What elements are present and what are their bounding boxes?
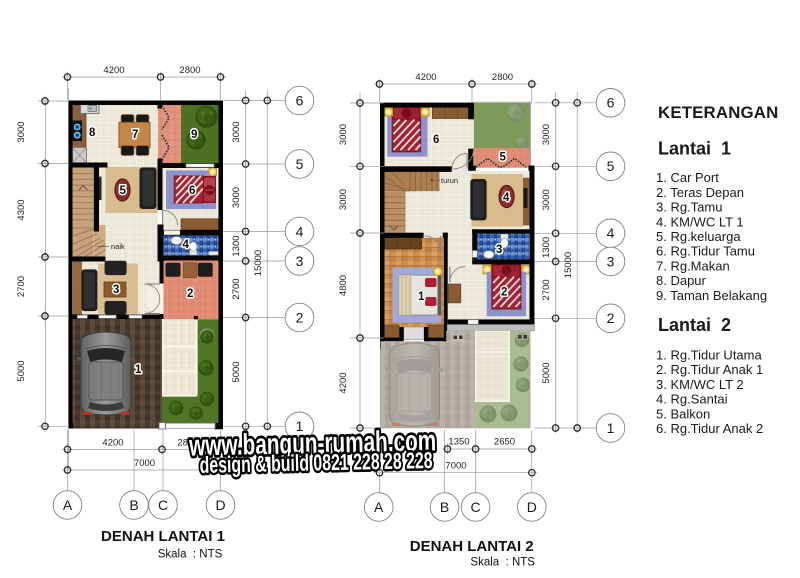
svg-text:A: A	[374, 499, 384, 515]
svg-text:2. Teras Depan: 2. Teras Depan	[656, 185, 744, 200]
svg-text:1: 1	[135, 364, 142, 376]
svg-text:3000: 3000	[541, 189, 552, 210]
svg-text:7. Rg.Makan: 7. Rg.Makan	[656, 258, 730, 273]
svg-text:Lantai 2: Lantai 2	[658, 315, 731, 335]
svg-text:4200: 4200	[415, 72, 436, 83]
svg-text:1. Car Port: 1. Car Port	[656, 170, 719, 185]
svg-text:15000: 15000	[253, 250, 264, 276]
svg-text:7: 7	[132, 129, 138, 141]
svg-text:3000: 3000	[338, 124, 349, 145]
svg-text:3000: 3000	[231, 187, 242, 208]
svg-text:3: 3	[607, 253, 615, 269]
svg-text:C: C	[471, 499, 481, 515]
svg-text:5: 5	[500, 152, 507, 164]
svg-text:4: 4	[296, 223, 304, 239]
svg-text:5: 5	[120, 185, 127, 197]
svg-text:9: 9	[191, 129, 197, 141]
svg-text:6: 6	[607, 95, 615, 111]
svg-text:Skala : NTS: Skala : NTS	[158, 549, 223, 561]
svg-text:15000: 15000	[563, 252, 574, 278]
svg-text:5. Rg.keluarga: 5. Rg.keluarga	[656, 229, 741, 244]
svg-text:6. Rg.Tidur Tamu: 6. Rg.Tidur Tamu	[656, 244, 755, 259]
svg-text:2: 2	[607, 310, 615, 326]
svg-text:2800: 2800	[179, 65, 200, 76]
svg-text:3000: 3000	[541, 124, 552, 145]
svg-text:1: 1	[418, 291, 425, 303]
svg-text:7000: 7000	[445, 461, 466, 472]
svg-text:4: 4	[503, 192, 510, 204]
svg-text:4. KM/WC LT 1: 4. KM/WC LT 1	[656, 214, 744, 229]
svg-text:2. Rg.Tidur Anak 1: 2. Rg.Tidur Anak 1	[656, 362, 763, 377]
svg-text:5000: 5000	[231, 361, 242, 382]
svg-text:4: 4	[607, 225, 615, 241]
svg-text:6: 6	[296, 92, 304, 108]
svg-text:1300: 1300	[231, 235, 242, 256]
svg-text:1350: 1350	[448, 437, 469, 448]
svg-text:Lantai 1: Lantai 1	[658, 139, 731, 159]
svg-text:design & build 0821 228 28 228: design & build 0821 228 28 228	[199, 447, 433, 478]
svg-text:2800: 2800	[492, 72, 513, 83]
svg-text:5: 5	[296, 156, 304, 172]
svg-text:B: B	[440, 499, 449, 515]
svg-text:2700: 2700	[231, 278, 242, 299]
svg-text:naik: naik	[111, 242, 125, 251]
svg-text:2: 2	[501, 287, 507, 299]
svg-text:5000: 5000	[541, 362, 552, 383]
svg-text:5: 5	[607, 158, 615, 174]
svg-text:4. Rg.Santai: 4. Rg.Santai	[656, 392, 728, 407]
svg-text:3000: 3000	[231, 121, 242, 142]
svg-text:2650: 2650	[494, 437, 515, 448]
svg-text:turun: turun	[441, 176, 458, 185]
svg-text:4300: 4300	[16, 199, 27, 220]
svg-text:2700: 2700	[541, 279, 552, 300]
svg-text:DENAH LANTAI 2: DENAH LANTAI 2	[410, 538, 534, 555]
svg-text:6: 6	[433, 134, 439, 146]
svg-text:D: D	[215, 497, 225, 513]
svg-text:5. Balkon: 5. Balkon	[656, 406, 710, 421]
svg-text:6: 6	[189, 185, 195, 197]
svg-text:3: 3	[496, 244, 502, 256]
svg-text:C: C	[158, 497, 168, 513]
svg-text:DENAH LANTAI 1: DENAH LANTAI 1	[101, 528, 225, 545]
svg-text:4: 4	[183, 239, 190, 251]
svg-text:3: 3	[296, 253, 304, 269]
svg-text:6. Rg.Tidur Anak 2: 6. Rg.Tidur Anak 2	[656, 421, 763, 436]
svg-text:1: 1	[607, 420, 615, 436]
svg-text:1300: 1300	[541, 237, 552, 258]
svg-text:7000: 7000	[134, 458, 155, 469]
svg-text:8. Dapur: 8. Dapur	[656, 273, 707, 288]
svg-text:4800: 4800	[338, 275, 349, 296]
svg-text:4200: 4200	[102, 438, 123, 449]
svg-text:4200: 4200	[338, 372, 349, 393]
svg-text:3. KM/WC LT 2: 3. KM/WC LT 2	[656, 377, 744, 392]
svg-text:1. Rg.Tidur Utama: 1. Rg.Tidur Utama	[656, 348, 762, 363]
svg-text:3: 3	[113, 284, 119, 296]
svg-text:A: A	[63, 497, 73, 513]
svg-text:9. Taman Belakang: 9. Taman Belakang	[656, 288, 767, 303]
svg-text:2: 2	[296, 309, 304, 325]
svg-text:2700: 2700	[16, 276, 27, 297]
svg-text:Skala : NTS: Skala : NTS	[470, 557, 535, 569]
svg-text:8: 8	[89, 127, 96, 139]
svg-text:2: 2	[187, 288, 193, 300]
svg-text:5000: 5000	[16, 360, 27, 381]
svg-text:4200: 4200	[103, 65, 124, 76]
svg-text:B: B	[129, 497, 138, 513]
svg-text:3000: 3000	[338, 189, 349, 210]
svg-text:3. Rg.Tamu: 3. Rg.Tamu	[656, 200, 722, 215]
svg-text:D: D	[527, 499, 537, 515]
svg-text:3000: 3000	[16, 121, 27, 142]
svg-text:KETERANGAN: KETERANGAN	[658, 103, 778, 122]
